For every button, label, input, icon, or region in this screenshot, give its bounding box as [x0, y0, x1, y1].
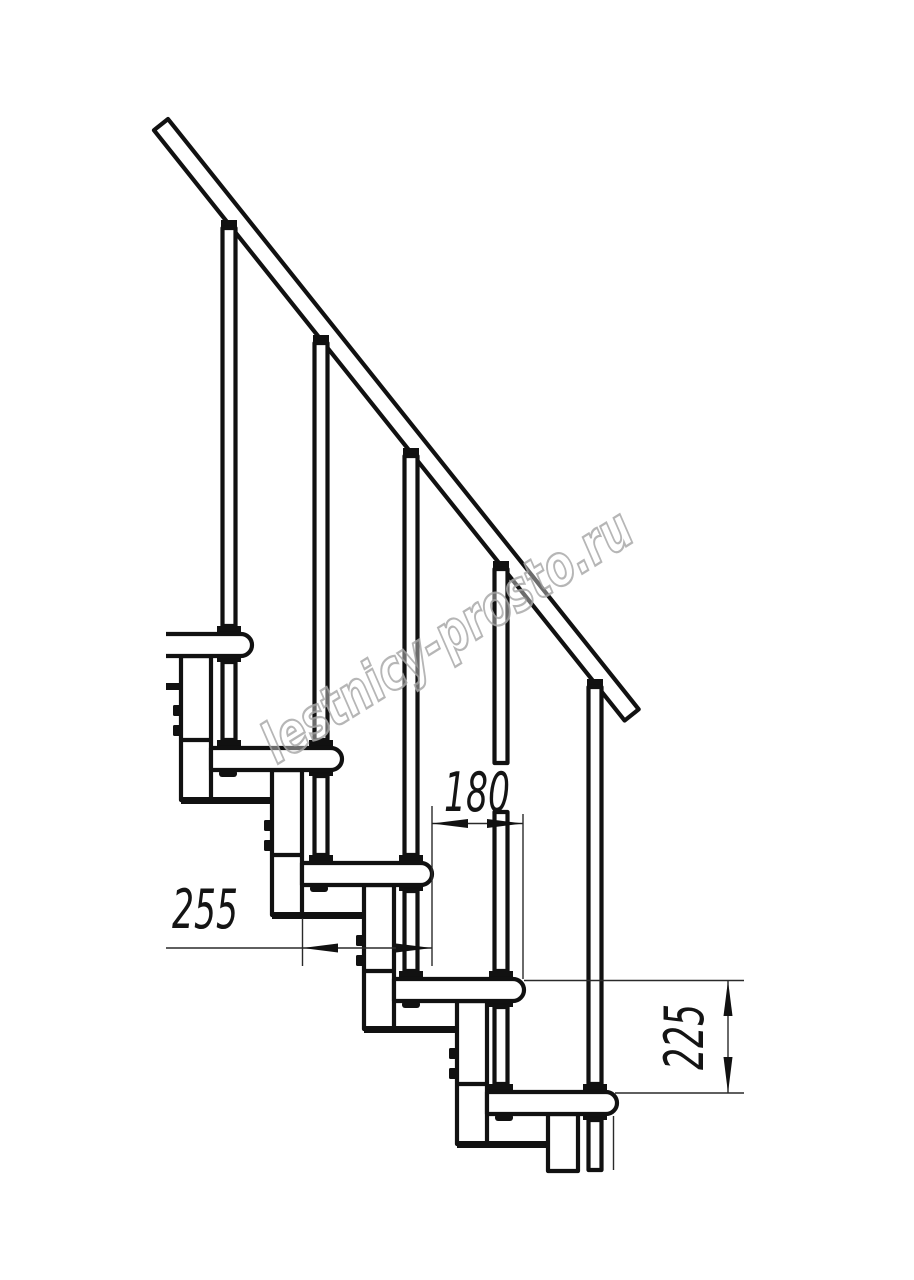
- base-plate: [166, 683, 181, 690]
- bolt-tab: [173, 705, 181, 716]
- dimension-label-180: 180: [444, 761, 510, 824]
- tread: [302, 863, 432, 885]
- tread-bolt: [495, 1114, 513, 1121]
- tread-bolt: [402, 1001, 420, 1008]
- dimension-label-255: 255: [172, 878, 238, 941]
- baluster: [495, 812, 508, 971]
- tread: [487, 1092, 617, 1114]
- base-plate: [457, 1141, 548, 1148]
- staircase-drawing-page: 180 255 225 lestnicy-prosto.ru: [0, 0, 914, 1280]
- spine-column: [457, 1001, 487, 1144]
- tread-bolt: [219, 770, 237, 777]
- support-post: [223, 662, 236, 740]
- support-post: [315, 776, 328, 855]
- spine-column: [272, 770, 302, 915]
- support-post: [405, 891, 418, 971]
- tread: [166, 634, 252, 656]
- base-plate: [181, 797, 272, 804]
- baluster: [589, 687, 602, 1084]
- support-post: [589, 1120, 602, 1170]
- dimension-label-225: 225: [653, 1004, 716, 1070]
- spine-column: [364, 885, 394, 1029]
- baluster: [223, 228, 236, 626]
- dimension-arrow: [724, 981, 733, 1017]
- bolt-tab: [264, 820, 272, 831]
- bolt-tab: [356, 935, 364, 946]
- base-plate: [364, 1026, 457, 1033]
- spine-column: [181, 656, 211, 800]
- staircase-side-elevation-drawing: 180 255 225 lestnicy-prosto.ru: [0, 0, 914, 1280]
- dimension-arrow: [724, 1057, 733, 1093]
- bolt-tab: [173, 725, 181, 736]
- base-plate: [272, 912, 364, 919]
- dimension-225: 225: [524, 981, 744, 1094]
- tread-bolt: [310, 885, 328, 892]
- tread: [394, 979, 524, 1001]
- support-post: [495, 1007, 508, 1084]
- watermark: lestnicy-prosto.ru: [250, 496, 645, 776]
- bolt-tab: [356, 955, 364, 966]
- bolt-tab: [449, 1068, 457, 1079]
- watermark-text: lestnicy-prosto.ru: [250, 496, 645, 776]
- bolt-tab: [449, 1048, 457, 1059]
- bolt-tab: [264, 840, 272, 851]
- dimension-arrow: [303, 944, 339, 953]
- spine-column: [548, 1114, 578, 1171]
